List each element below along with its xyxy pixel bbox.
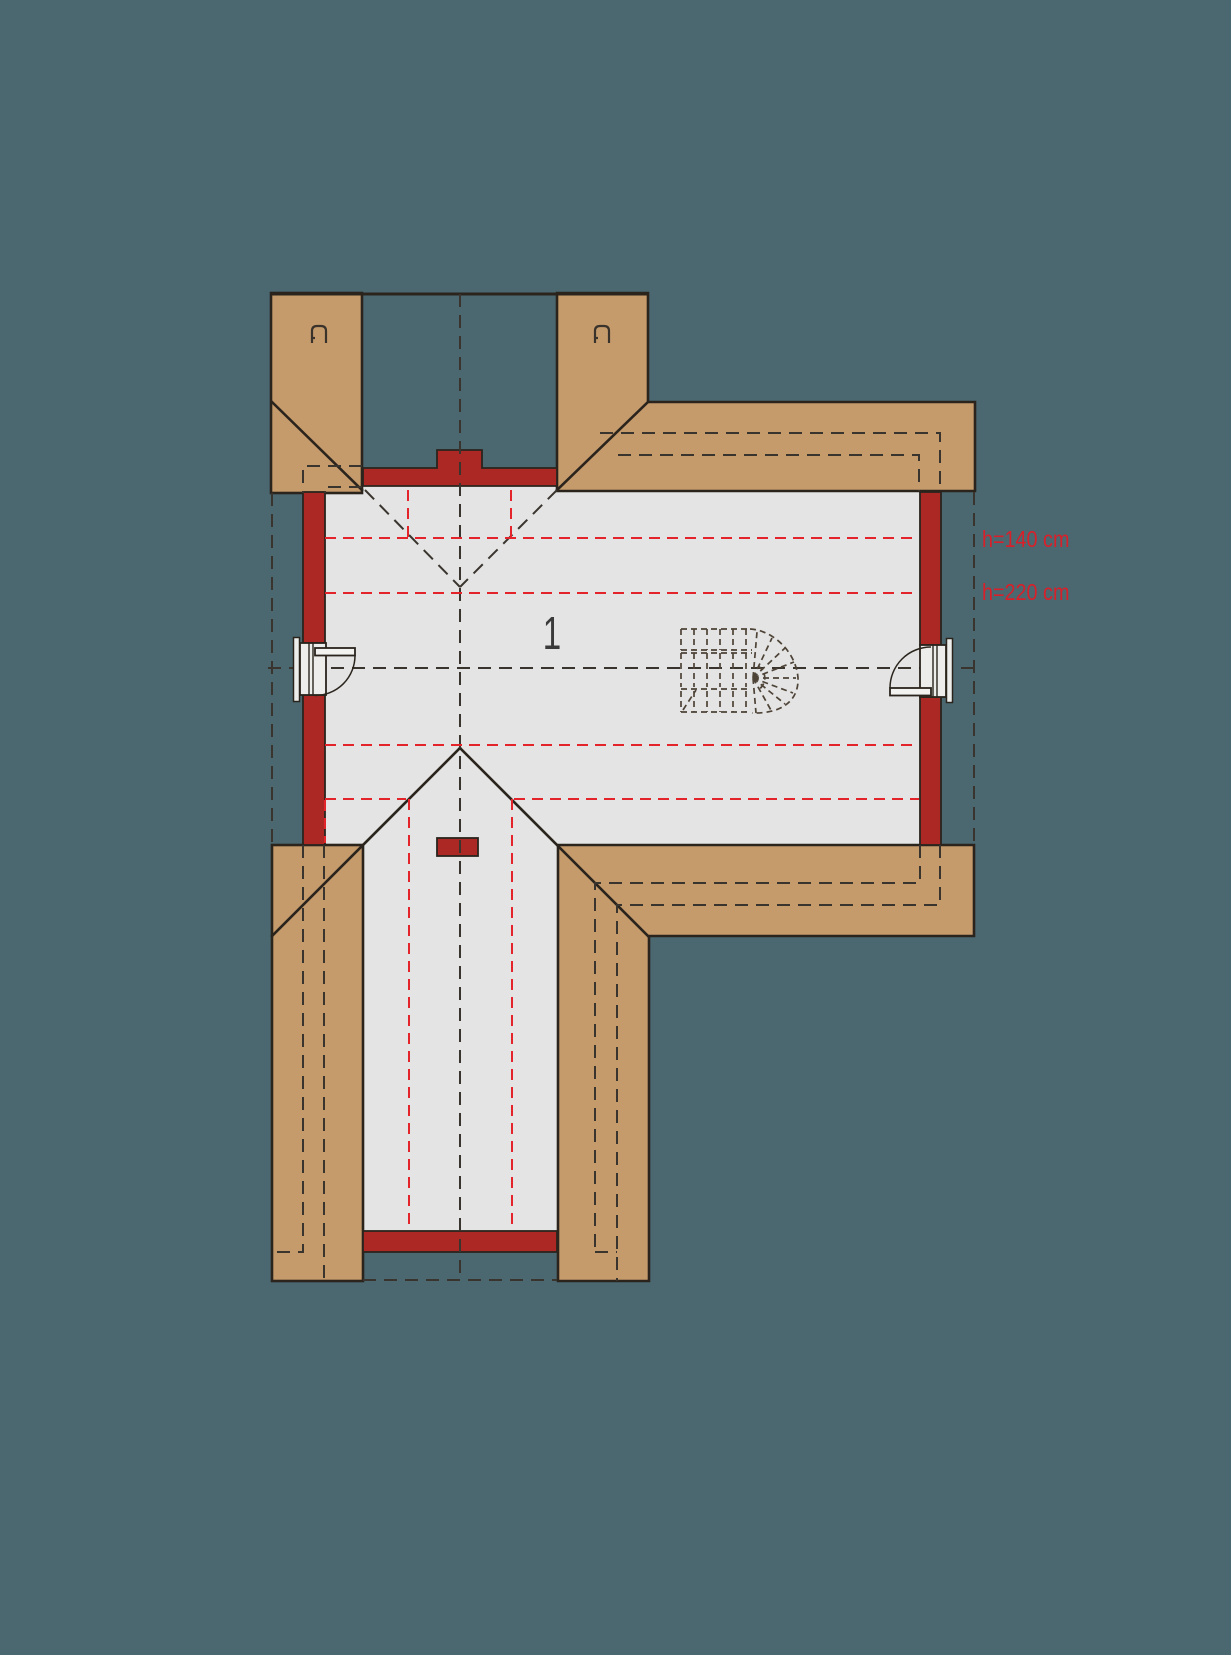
door-right-leaf xyxy=(890,688,931,696)
wall-right-upper xyxy=(920,492,941,645)
roof-top-left xyxy=(271,293,362,493)
roof-top-right xyxy=(557,293,975,491)
roof-bottom-left xyxy=(272,845,363,1281)
door-left-sill xyxy=(294,638,300,702)
wall-left-upper xyxy=(303,492,325,643)
chimney-bottom xyxy=(437,838,478,856)
height-label-140: h=140 cm xyxy=(982,527,1069,551)
wall-left-lower xyxy=(303,695,325,845)
door-left-leaf xyxy=(315,648,355,656)
floor-plan-drawing xyxy=(0,0,1231,1655)
door-right-sill xyxy=(947,639,953,703)
room-number-label: 1 xyxy=(542,610,562,656)
height-label-220: h=220 cm xyxy=(982,580,1069,604)
floor-plan-canvas: 1 h=140 cm h=220 cm xyxy=(0,0,1231,1655)
wall-right-lower xyxy=(920,697,941,845)
roof-bottom-right xyxy=(558,845,974,1281)
